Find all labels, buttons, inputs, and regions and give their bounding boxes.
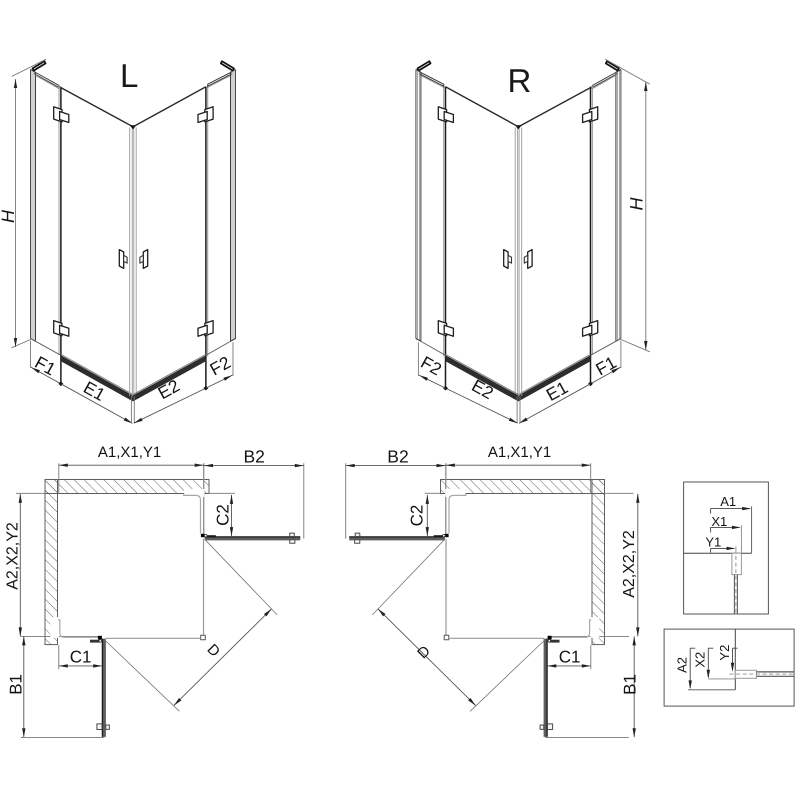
svg-text:B1: B1 (6, 674, 25, 695)
svg-text:A1: A1 (720, 494, 736, 509)
svg-text:A2: A2 (675, 657, 690, 673)
svg-text:A1,X1,Y1: A1,X1,Y1 (488, 444, 551, 461)
svg-text:X2: X2 (692, 652, 707, 668)
svg-text:A2,X2,Y2: A2,X2,Y2 (621, 530, 638, 598)
svg-text:L: L (120, 57, 138, 94)
svg-text:B2: B2 (387, 447, 408, 467)
svg-text:C2: C2 (407, 505, 426, 527)
svg-text:B1: B1 (621, 674, 640, 695)
svg-text:X1: X1 (711, 514, 727, 529)
svg-text:H: H (627, 197, 647, 211)
svg-text:C2: C2 (214, 504, 233, 526)
svg-text:H: H (0, 209, 18, 223)
svg-text:C1: C1 (70, 647, 92, 666)
svg-text:A1,X1,Y1: A1,X1,Y1 (98, 444, 161, 461)
svg-text:R: R (507, 62, 531, 99)
svg-text:C1: C1 (559, 647, 581, 666)
svg-text:Y1: Y1 (705, 534, 721, 549)
svg-text:Y2: Y2 (717, 645, 732, 661)
svg-text:A2,X2,Y2: A2,X2,Y2 (5, 522, 22, 590)
svg-text:B2: B2 (243, 447, 264, 467)
